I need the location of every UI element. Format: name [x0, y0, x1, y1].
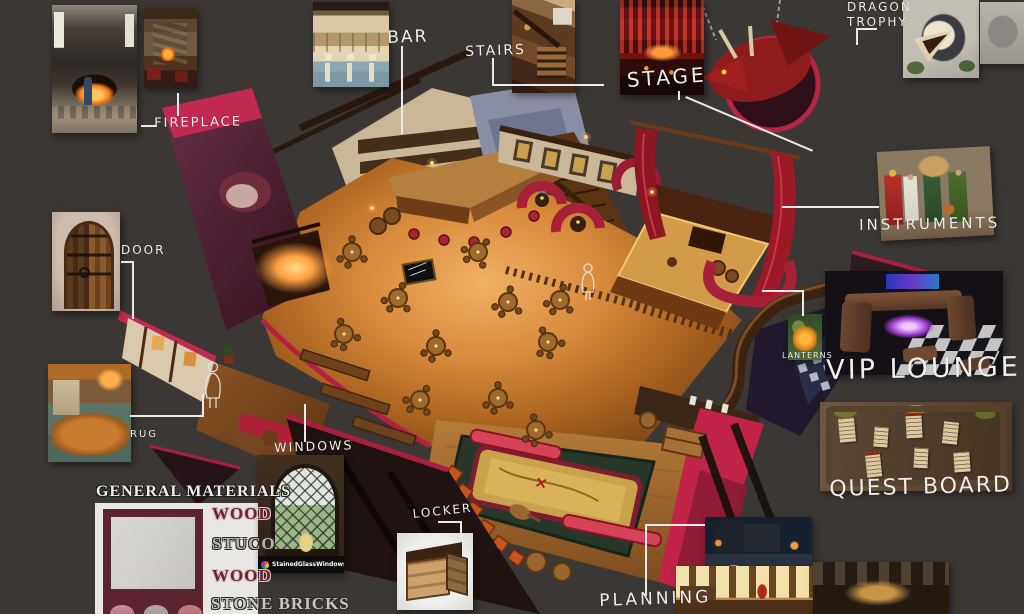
door-photo [52, 212, 120, 311]
connector-line-locker [438, 521, 462, 523]
connector-line-rug [130, 415, 204, 417]
neon-table-art [884, 315, 934, 338]
connector-line-planning [645, 524, 647, 596]
connector-line-instruments [782, 206, 879, 208]
quest-paper [942, 421, 959, 444]
dragon-trophy-photo-2 [980, 2, 1024, 64]
planning-photo-3 [813, 562, 949, 614]
material-label-stuco: STUCO [212, 534, 276, 554]
label-fireplace: FIREPLACE [154, 114, 242, 131]
connector-line-fireplace [177, 93, 179, 116]
label-stairs: STAIRS [465, 42, 526, 60]
fireplace-photo-1 [52, 5, 137, 133]
connector-line-stairs [492, 84, 604, 86]
concept-board: StainedGlassWindows.com GENERAL MATERIAL… [0, 0, 1024, 614]
flower-vase-art [299, 533, 313, 552]
connector-line-bar [401, 46, 403, 134]
connector-line-stairs [492, 58, 494, 86]
quest-paper [906, 412, 923, 438]
stone-arches-art [103, 597, 203, 614]
sofa-art [946, 295, 976, 340]
connector-line-lanterns [762, 290, 804, 292]
fireplace-photo-2 [144, 8, 197, 88]
person-figure [84, 77, 92, 105]
rug-photo [48, 364, 131, 462]
connector-line-door [132, 261, 134, 319]
quest-paper [838, 417, 856, 442]
arch-art [139, 600, 173, 614]
connector-line-dragon [856, 28, 858, 45]
quest-paper [865, 451, 883, 477]
material-label-stone-bricks: STONE BRICKS [211, 594, 350, 614]
connector-line-rug [202, 394, 204, 417]
label-quest-board: QUEST BOARD [829, 472, 1012, 502]
connector-line-locker [460, 521, 462, 536]
quest-paper [873, 426, 888, 447]
connector-line-lanterns [802, 290, 804, 316]
quest-paper [954, 451, 971, 472]
dragon-trophy-photo [903, 0, 979, 78]
label-rug: RUG [130, 429, 158, 440]
arch-art [105, 600, 139, 614]
label-vip-lounge: VIP LOUNGE [826, 352, 1021, 386]
tv-screen-art [886, 274, 939, 289]
label-instruments: INSTRUMENTS [859, 214, 1000, 234]
label-planning: PLANNING [599, 587, 712, 611]
door-art [64, 221, 115, 309]
label-bar: BAR [387, 27, 429, 48]
label-windows: WINDOWS [274, 437, 354, 455]
material-label-wood: WOOD [212, 504, 272, 524]
chest-front-art [406, 556, 450, 602]
sofa-art [840, 301, 873, 352]
label-dragon-trophy: DRAGON TROPHY [847, 0, 913, 30]
locker-photo [397, 533, 473, 610]
chest-side-art [446, 551, 468, 595]
material-label-wood: WOOD [212, 566, 272, 586]
arch-art [173, 600, 203, 614]
quest-paper [914, 448, 929, 469]
label-door: DOOR [121, 243, 165, 257]
watermark-text: StainedGlassWindows.com [272, 561, 344, 568]
connector-line-windows [304, 404, 306, 442]
general-materials-title: GENERAL MATERIALS [96, 483, 291, 501]
bar-photo [313, 2, 389, 87]
connector-line-stage [678, 91, 680, 100]
connector-line-planning [645, 524, 705, 526]
wall-stucco-panel-art [103, 509, 203, 597]
